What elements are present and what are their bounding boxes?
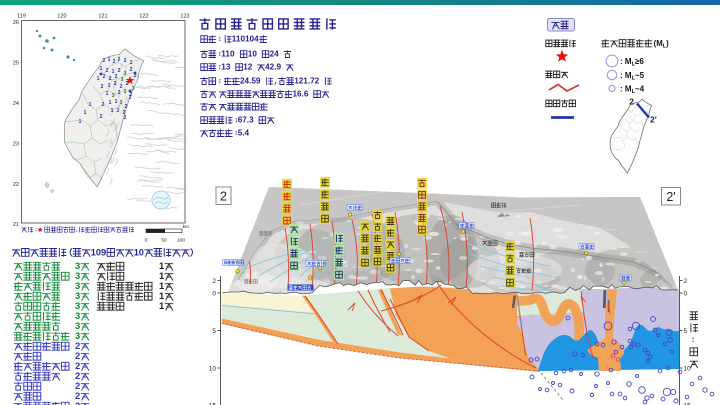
- svg-text:1: 1: [159, 300, 164, 311]
- svg-text:42.9: 42.9: [265, 63, 281, 72]
- svg-text:10: 10: [209, 365, 217, 372]
- svg-text:1: 1: [89, 102, 92, 108]
- svg-text:1: 1: [84, 110, 87, 116]
- svg-text:2: 2: [118, 57, 121, 63]
- svg-text:1: 1: [100, 66, 103, 72]
- svg-text:5: 5: [684, 328, 688, 335]
- svg-text:1: 1: [130, 60, 133, 66]
- svg-text:2: 2: [124, 58, 127, 64]
- svg-text:24.59: 24.59: [240, 77, 261, 86]
- svg-text:3: 3: [121, 77, 124, 83]
- svg-text:24: 24: [270, 50, 280, 59]
- svg-text:1: 1: [115, 99, 118, 105]
- svg-text:13: 13: [221, 63, 231, 72]
- svg-text:22: 22: [13, 182, 19, 188]
- svg-text:1: 1: [79, 119, 82, 125]
- svg-text:10: 10: [134, 247, 144, 257]
- svg-text:1: 1: [108, 83, 111, 89]
- svg-text:2: 2: [212, 278, 216, 285]
- svg-text:123: 123: [180, 14, 189, 20]
- svg-text:2: 2: [118, 68, 121, 74]
- svg-text:2: 2: [118, 90, 121, 96]
- svg-text:1: 1: [109, 100, 112, 106]
- svg-text:2: 2: [75, 400, 80, 405]
- svg-text:2: 2: [129, 95, 132, 101]
- svg-text:122: 122: [139, 14, 148, 20]
- svg-text:119: 119: [17, 14, 26, 20]
- svg-text:24: 24: [13, 101, 19, 107]
- svg-text:12: 12: [243, 63, 253, 72]
- svg-text:5: 5: [212, 328, 216, 335]
- svg-text:3: 3: [124, 89, 127, 95]
- svg-text:5.4: 5.4: [238, 129, 250, 138]
- svg-text:100: 100: [177, 238, 185, 244]
- svg-text:50: 50: [161, 238, 167, 244]
- svg-text:21: 21: [13, 222, 19, 228]
- svg-text:0: 0: [212, 290, 216, 297]
- svg-text:2: 2: [109, 76, 112, 82]
- svg-text:1: 1: [111, 108, 114, 114]
- svg-text:2: 2: [106, 68, 109, 74]
- svg-text:2: 2: [114, 81, 117, 87]
- svg-text:2: 2: [117, 108, 120, 114]
- svg-text:110: 110: [221, 50, 235, 59]
- svg-text:0: 0: [145, 238, 148, 244]
- svg-text:67.3: 67.3: [238, 116, 254, 125]
- svg-text:2: 2: [684, 278, 688, 285]
- svg-text:2: 2: [101, 84, 104, 90]
- svg-text:2': 2': [650, 115, 657, 125]
- svg-text:120: 120: [57, 14, 66, 20]
- svg-text:109: 109: [91, 247, 106, 257]
- svg-text:km: km: [183, 224, 189, 230]
- svg-text:1: 1: [97, 76, 100, 82]
- svg-text:3: 3: [132, 86, 135, 92]
- svg-text:2: 2: [124, 115, 127, 121]
- svg-text:2': 2': [666, 190, 675, 204]
- svg-text:2: 2: [100, 114, 103, 120]
- svg-text:10: 10: [248, 50, 258, 59]
- svg-text:2: 2: [103, 58, 106, 64]
- svg-text:121: 121: [98, 14, 107, 20]
- svg-text:2: 2: [102, 102, 105, 108]
- svg-text:2: 2: [115, 74, 118, 80]
- svg-text:3: 3: [120, 100, 123, 106]
- svg-text:16.6: 16.6: [293, 90, 309, 99]
- svg-text:121.72: 121.72: [294, 77, 319, 86]
- svg-text:23: 23: [13, 142, 19, 148]
- svg-text:3: 3: [124, 71, 127, 77]
- svg-text:1: 1: [106, 91, 109, 97]
- svg-text:1: 1: [108, 57, 111, 63]
- svg-text:10: 10: [684, 365, 692, 372]
- svg-text:2: 2: [220, 190, 227, 204]
- svg-text:2: 2: [113, 59, 116, 65]
- svg-text:25: 25: [13, 61, 19, 67]
- svg-text:2: 2: [629, 97, 634, 107]
- svg-text:(ML): (ML): [654, 39, 670, 50]
- svg-text:2: 2: [130, 67, 133, 73]
- svg-text:0: 0: [684, 290, 688, 297]
- svg-text:110104: 110104: [232, 35, 259, 44]
- svg-text:26: 26: [13, 20, 19, 26]
- svg-text:2: 2: [103, 74, 106, 80]
